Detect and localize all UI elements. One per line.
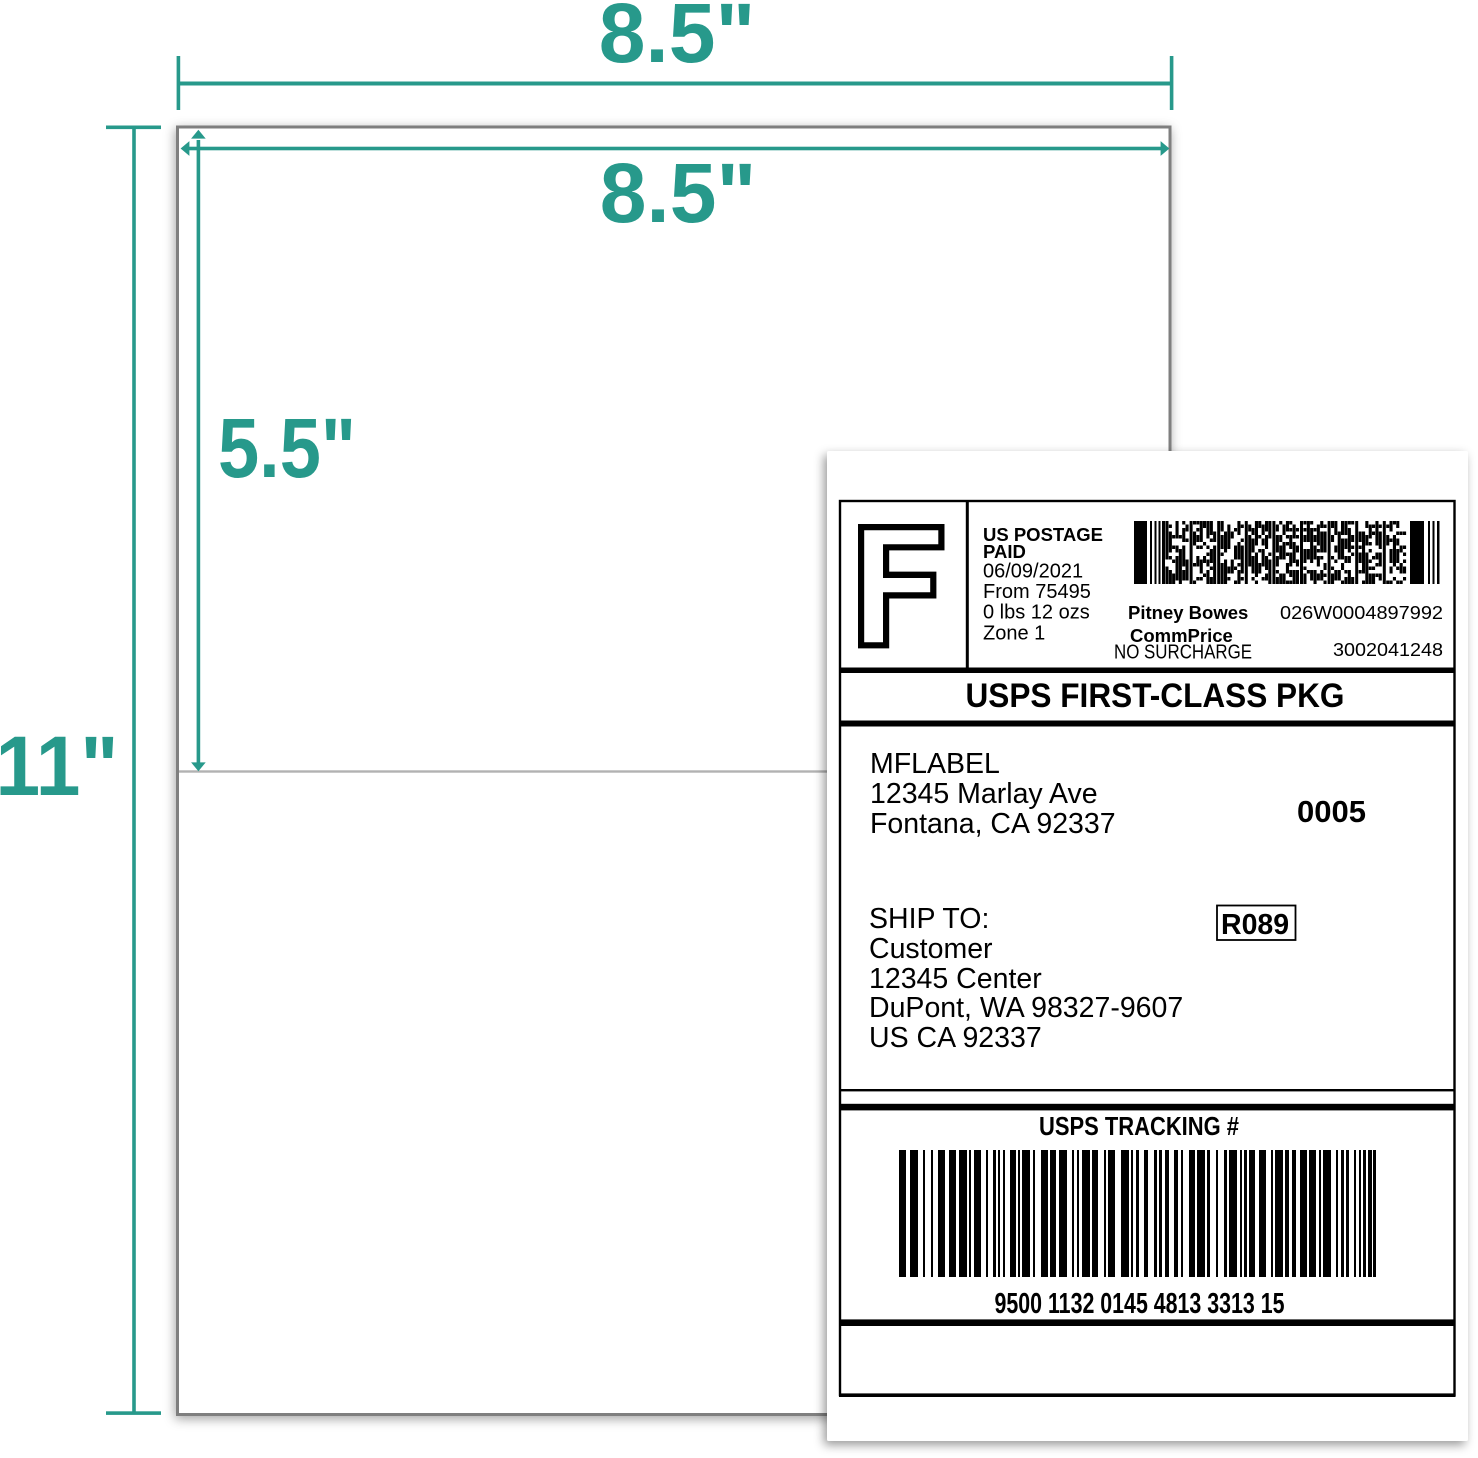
svg-text:USPS TRACKING #: USPS TRACKING # bbox=[1039, 1111, 1239, 1141]
svg-text:R089: R089 bbox=[1221, 909, 1289, 941]
svg-text:US CA 92337: US CA 92337 bbox=[869, 1022, 1042, 1054]
svg-text:0005: 0005 bbox=[1297, 794, 1366, 829]
svg-text:NO SURCHARGE: NO SURCHARGE bbox=[1114, 642, 1252, 664]
svg-text:026W0004897992: 026W0004897992 bbox=[1280, 602, 1443, 623]
svg-text:DuPont, WA 98327-9607: DuPont, WA 98327-9607 bbox=[869, 992, 1183, 1024]
svg-text:12345 Marlay Ave: 12345 Marlay Ave bbox=[870, 778, 1098, 810]
svg-text:MFLABEL: MFLABEL bbox=[870, 748, 1000, 780]
svg-text:PAID: PAID bbox=[983, 541, 1026, 562]
svg-text:Pitney Bowes: Pitney Bowes bbox=[1128, 602, 1248, 623]
svg-text:From 75495: From 75495 bbox=[983, 581, 1091, 603]
svg-text:9500 1132 0145 4813 3313 15: 9500 1132 0145 4813 3313 15 bbox=[995, 1288, 1285, 1320]
svg-text:12345 Center: 12345 Center bbox=[869, 963, 1042, 995]
svg-text:11": 11" bbox=[0, 719, 119, 813]
svg-text:3002041248: 3002041248 bbox=[1333, 639, 1443, 660]
svg-text:5.5": 5.5" bbox=[218, 401, 356, 495]
svg-text:8.5": 8.5" bbox=[600, 146, 757, 240]
svg-text:0 lbs 12 ozs: 0 lbs 12 ozs bbox=[983, 602, 1090, 624]
svg-text:8.5": 8.5" bbox=[599, 0, 756, 80]
svg-text:06/09/2021: 06/09/2021 bbox=[983, 561, 1083, 583]
svg-text:SHIP TO:: SHIP TO: bbox=[869, 903, 989, 935]
svg-text:Zone 1: Zone 1 bbox=[983, 623, 1045, 645]
svg-text:Fontana, CA 92337: Fontana, CA 92337 bbox=[870, 808, 1116, 840]
svg-text:USPS FIRST-CLASS PKG: USPS FIRST-CLASS PKG bbox=[966, 677, 1345, 715]
svg-text:Customer: Customer bbox=[869, 933, 993, 965]
